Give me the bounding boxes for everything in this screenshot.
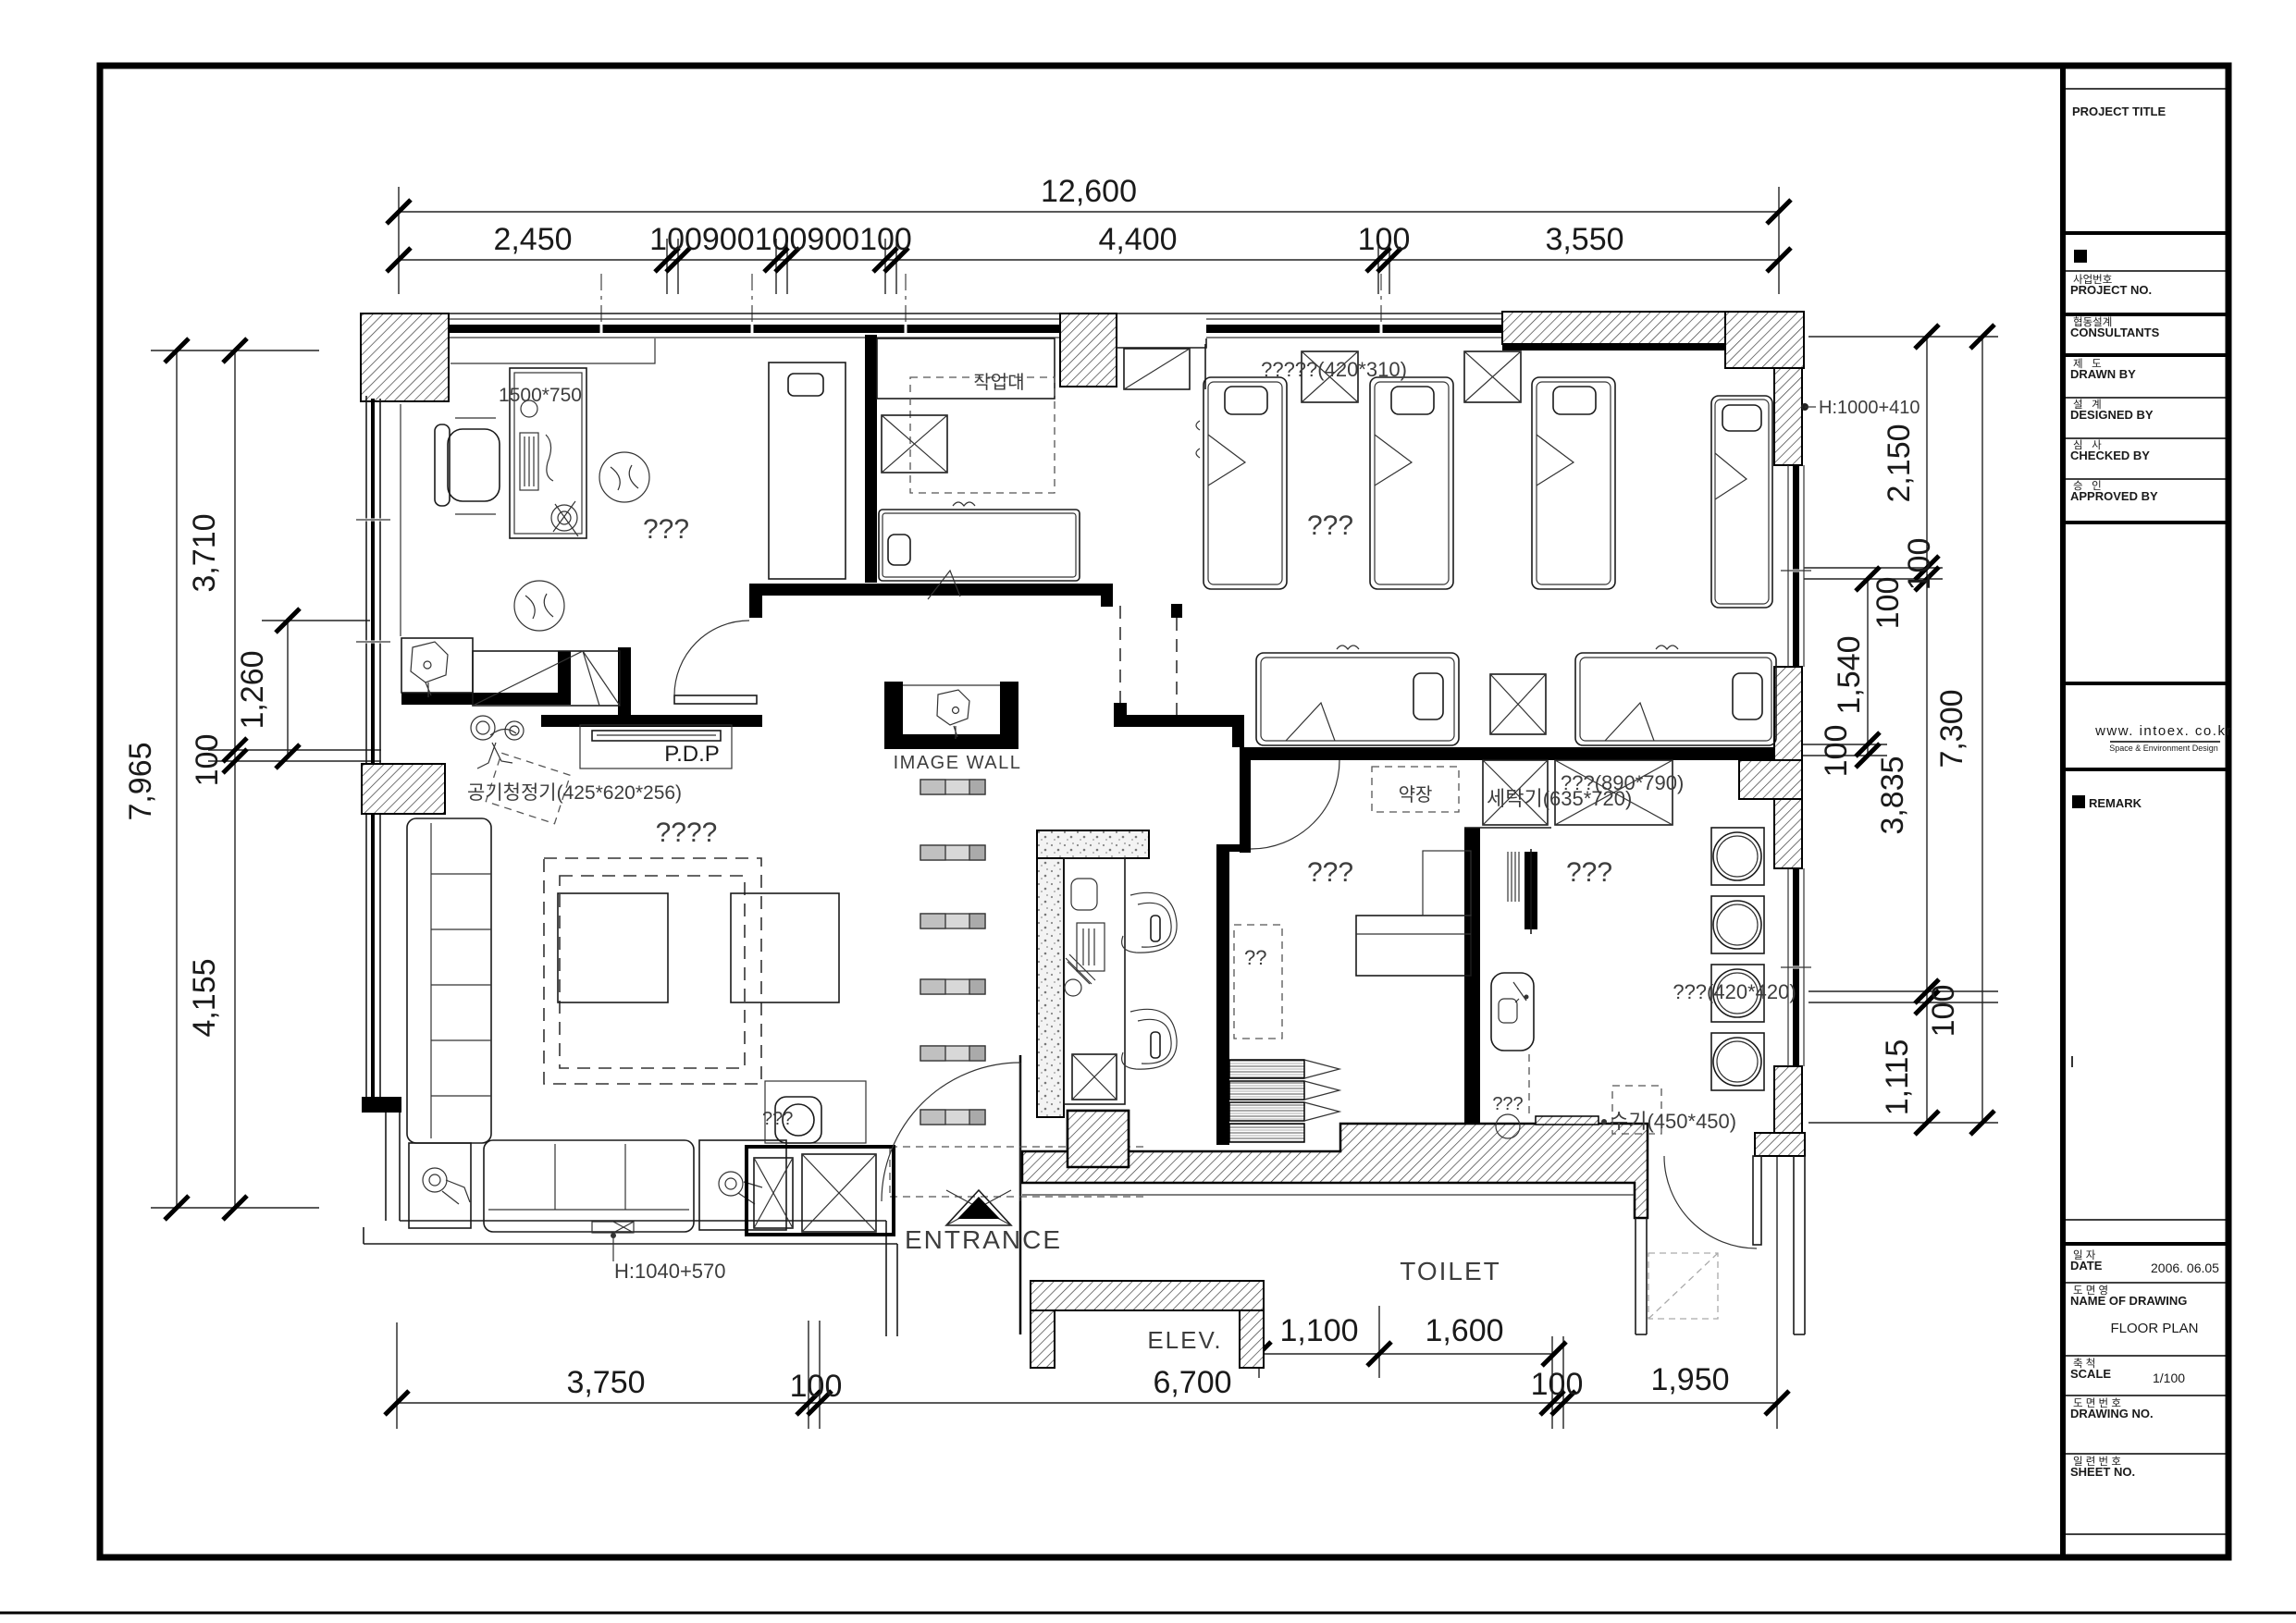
svg-text:협동설계: 협동설계 bbox=[2073, 316, 2112, 328]
svg-text:1,115: 1,115 bbox=[1880, 1039, 1915, 1116]
svg-text:공기청정기(425*620*256): 공기청정기(425*620*256) bbox=[467, 782, 682, 804]
svg-text:3,550: 3,550 bbox=[1545, 222, 1623, 257]
svg-text:100: 100 bbox=[1870, 577, 1906, 630]
svg-text:ENTRANCE: ENTRANCE bbox=[905, 1225, 1062, 1254]
svg-text:4,155: 4,155 bbox=[187, 958, 222, 1037]
svg-text:100: 100 bbox=[1902, 538, 1937, 591]
svg-text:???: ??? bbox=[643, 514, 689, 545]
svg-text:TOILET: TOILET bbox=[1400, 1257, 1501, 1285]
svg-text:???(890*790): ???(890*790) bbox=[1561, 771, 1684, 794]
svg-text:IMAGE WALL: IMAGE WALL bbox=[894, 753, 1022, 773]
svg-text:4,400: 4,400 bbox=[1098, 222, 1177, 257]
svg-text:???: ??? bbox=[1307, 510, 1353, 541]
svg-text:1,950: 1,950 bbox=[1650, 1362, 1729, 1397]
svg-text:3,710: 3,710 bbox=[187, 513, 222, 592]
svg-text:100: 100 bbox=[190, 734, 225, 787]
svg-text:일 련 번 호: 일 련 번 호 bbox=[2073, 1455, 2121, 1468]
svg-text:???: ??? bbox=[1492, 1094, 1523, 1114]
svg-text:심 사: 심 사 bbox=[2073, 439, 2102, 451]
svg-text:설 계: 설 계 bbox=[2073, 399, 2102, 411]
svg-text:2006. 06.05: 2006. 06.05 bbox=[2151, 1260, 2219, 1275]
svg-text:www. intoex. co.kr: www. intoex. co.kr bbox=[2094, 723, 2232, 739]
svg-text:7,965: 7,965 bbox=[123, 742, 158, 820]
svg-text:1,540: 1,540 bbox=[1832, 635, 1867, 714]
svg-text:제 도: 제 도 bbox=[2073, 358, 2102, 370]
svg-text:1,260: 1,260 bbox=[235, 650, 270, 729]
svg-text:작업대: 작업대 bbox=[973, 372, 1024, 393]
svg-text:???: ??? bbox=[762, 1109, 793, 1129]
svg-text:H:1040+570: H:1040+570 bbox=[614, 1260, 726, 1283]
svg-text:ELEV.: ELEV. bbox=[1147, 1326, 1222, 1354]
svg-text:약장: 약장 bbox=[1399, 784, 1433, 805]
svg-text:사업번호: 사업번호 bbox=[2073, 274, 2112, 286]
svg-text:2,150: 2,150 bbox=[1882, 424, 1917, 502]
svg-text:???(420*420): ???(420*420) bbox=[1673, 980, 1796, 1003]
svg-text:?????(420*310): ?????(420*310) bbox=[1261, 358, 1407, 381]
svg-text:PROJECT TITLE: PROJECT TITLE bbox=[2072, 105, 2166, 118]
svg-text:100: 100 bbox=[1358, 222, 1411, 257]
svg-text:일 자: 일 자 bbox=[2073, 1248, 2096, 1261]
svg-text:3,750: 3,750 bbox=[566, 1365, 645, 1400]
svg-text:수기(450*450): 수기(450*450) bbox=[1610, 1110, 1736, 1133]
svg-text:도 면 영: 도 면 영 bbox=[2073, 1285, 2108, 1297]
svg-text:???: ??? bbox=[1566, 857, 1612, 888]
svg-text:6,700: 6,700 bbox=[1153, 1365, 1231, 1400]
svg-text:??: ?? bbox=[1244, 946, 1266, 969]
svg-text:승 인: 승 인 bbox=[2073, 480, 2102, 492]
svg-text:REMARK: REMARK bbox=[2089, 796, 2142, 810]
svg-text:12,600: 12,600 bbox=[1041, 174, 1137, 209]
svg-text:1/100: 1/100 bbox=[2153, 1371, 2185, 1385]
svg-text:Space & Environment Design: Space & Environment Design bbox=[2109, 744, 2218, 753]
svg-text:1,100: 1,100 bbox=[1279, 1313, 1358, 1348]
svg-text:100: 100 bbox=[1819, 725, 1854, 778]
svg-text:100900100900100: 100900100900100 bbox=[649, 222, 912, 257]
svg-text:2,450: 2,450 bbox=[493, 222, 572, 257]
svg-text:???: ??? bbox=[1307, 857, 1353, 888]
svg-text:7,300: 7,300 bbox=[1934, 689, 1969, 768]
svg-text:도 면 번 호: 도 면 번 호 bbox=[2073, 1397, 2121, 1409]
svg-text:????: ???? bbox=[656, 818, 718, 848]
svg-text:P.D.P: P.D.P bbox=[664, 742, 720, 767]
svg-text:1500*750: 1500*750 bbox=[499, 385, 582, 406]
svg-text:100: 100 bbox=[790, 1369, 843, 1404]
svg-text:FLOOR PLAN: FLOOR PLAN bbox=[2110, 1321, 2198, 1336]
svg-text:1,600: 1,600 bbox=[1425, 1313, 1503, 1348]
svg-text:100: 100 bbox=[1531, 1367, 1584, 1402]
svg-text:축 척: 축 척 bbox=[2073, 1358, 2095, 1370]
svg-text:100: 100 bbox=[1926, 985, 1961, 1038]
svg-text:H:1000+410: H:1000+410 bbox=[1819, 398, 1920, 418]
svg-text:3,835: 3,835 bbox=[1875, 756, 1910, 834]
